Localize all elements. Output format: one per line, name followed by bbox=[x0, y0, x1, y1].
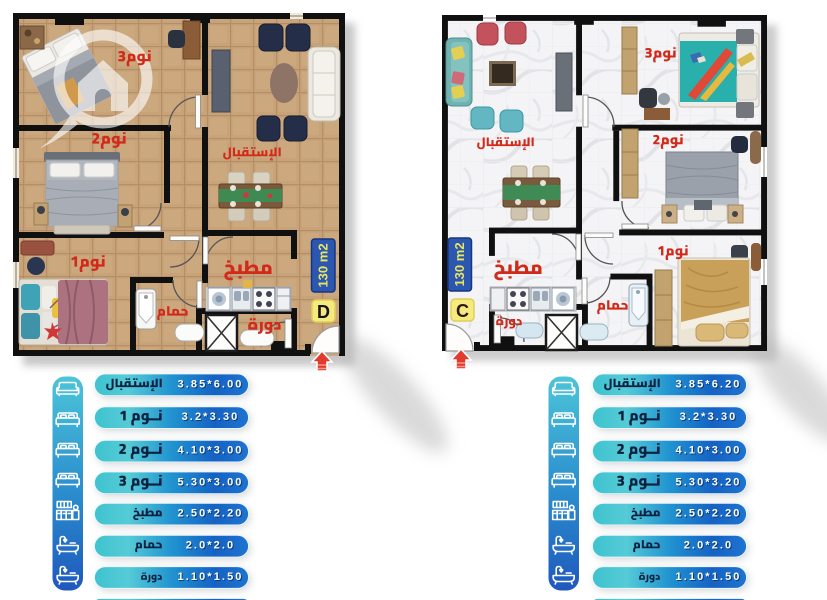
svg-text:1.10*1.50: 1.10*1.50 bbox=[676, 571, 742, 583]
svg-text:C: C bbox=[456, 301, 469, 321]
svg-text:2.0*2.0: 2.0*2.0 bbox=[186, 540, 236, 552]
svg-text:5.30*3.20: 5.30*3.20 bbox=[676, 476, 742, 488]
svg-text:130 m2: 130 m2 bbox=[316, 243, 331, 287]
svg-text:130 m2: 130 m2 bbox=[452, 242, 467, 286]
svg-text:3.85*6.20: 3.85*6.20 bbox=[676, 378, 742, 390]
svg-text:1.10*1.50: 1.10*1.50 bbox=[178, 571, 244, 583]
svg-text:3.2*3.30: 3.2*3.30 bbox=[182, 411, 240, 423]
svg-text:2.0*2.0: 2.0*2.0 bbox=[684, 540, 734, 552]
svg-text:4.10*3.00: 4.10*3.00 bbox=[676, 445, 742, 457]
svg-text:5.30*3.00: 5.30*3.00 bbox=[178, 476, 244, 488]
svg-text:2.50*2.20: 2.50*2.20 bbox=[676, 508, 742, 520]
svg-text:3.2*3.30: 3.2*3.30 bbox=[680, 411, 738, 423]
svg-text:4.10*3.00: 4.10*3.00 bbox=[178, 445, 244, 457]
svg-text:3.85*6.00: 3.85*6.00 bbox=[178, 378, 244, 390]
svg-text:2.50*2.20: 2.50*2.20 bbox=[178, 508, 244, 520]
svg-text:D: D bbox=[317, 302, 330, 322]
